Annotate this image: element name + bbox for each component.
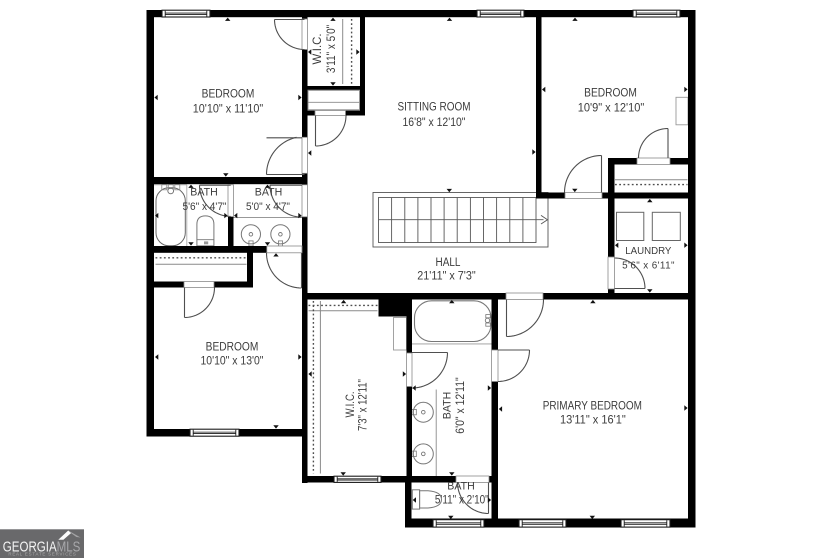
- svg-text:7'3" x 12'11": 7'3" x 12'11": [356, 379, 369, 431]
- svg-text:W.I.C.: W.I.C.: [311, 33, 324, 64]
- svg-text:3'11" x 5'0": 3'11" x 5'0": [325, 25, 338, 73]
- svg-text:BATH: BATH: [190, 187, 217, 199]
- svg-text:5'6" x 4'7": 5'6" x 4'7": [183, 202, 227, 213]
- svg-text:BATH: BATH: [447, 481, 474, 493]
- svg-text:PRIMARY BEDROOM: PRIMARY BEDROOM: [543, 400, 642, 413]
- svg-text:21'11" x 7'3": 21'11" x 7'3": [417, 270, 475, 283]
- svg-text:W.I.C.: W.I.C.: [344, 391, 357, 417]
- svg-text:10'9" x 12'10": 10'9" x 12'10": [578, 102, 645, 114]
- svg-text:BATH: BATH: [255, 187, 282, 199]
- svg-text:HALL: HALL: [436, 256, 461, 269]
- svg-text:5'11" x 2'10": 5'11" x 2'10": [435, 493, 489, 506]
- svg-text:13'11" x 16'1": 13'11" x 16'1": [560, 414, 626, 426]
- svg-text:5'0" x 4'7": 5'0" x 4'7": [246, 202, 290, 213]
- svg-text:16'8" x 12'10": 16'8" x 12'10": [402, 116, 465, 129]
- svg-text:SITTING ROOM: SITTING ROOM: [398, 100, 471, 113]
- svg-text:5'6" x 6'11": 5'6" x 6'11": [622, 261, 675, 272]
- svg-text:REAL ESTATE SERVICES: REAL ESTATE SERVICES: [8, 551, 76, 556]
- svg-text:LAUNDRY: LAUNDRY: [625, 246, 672, 257]
- svg-text:BEDROOM: BEDROOM: [202, 88, 255, 101]
- svg-text:10'10" x 13'0": 10'10" x 13'0": [200, 355, 263, 368]
- svg-text:BEDROOM: BEDROOM: [206, 341, 259, 354]
- svg-text:BATH: BATH: [442, 392, 454, 419]
- svg-text:BEDROOM: BEDROOM: [584, 87, 637, 100]
- svg-text:10'10" x 11'10": 10'10" x 11'10": [193, 103, 263, 116]
- svg-text:6'0" x 12'11": 6'0" x 12'11": [455, 377, 468, 433]
